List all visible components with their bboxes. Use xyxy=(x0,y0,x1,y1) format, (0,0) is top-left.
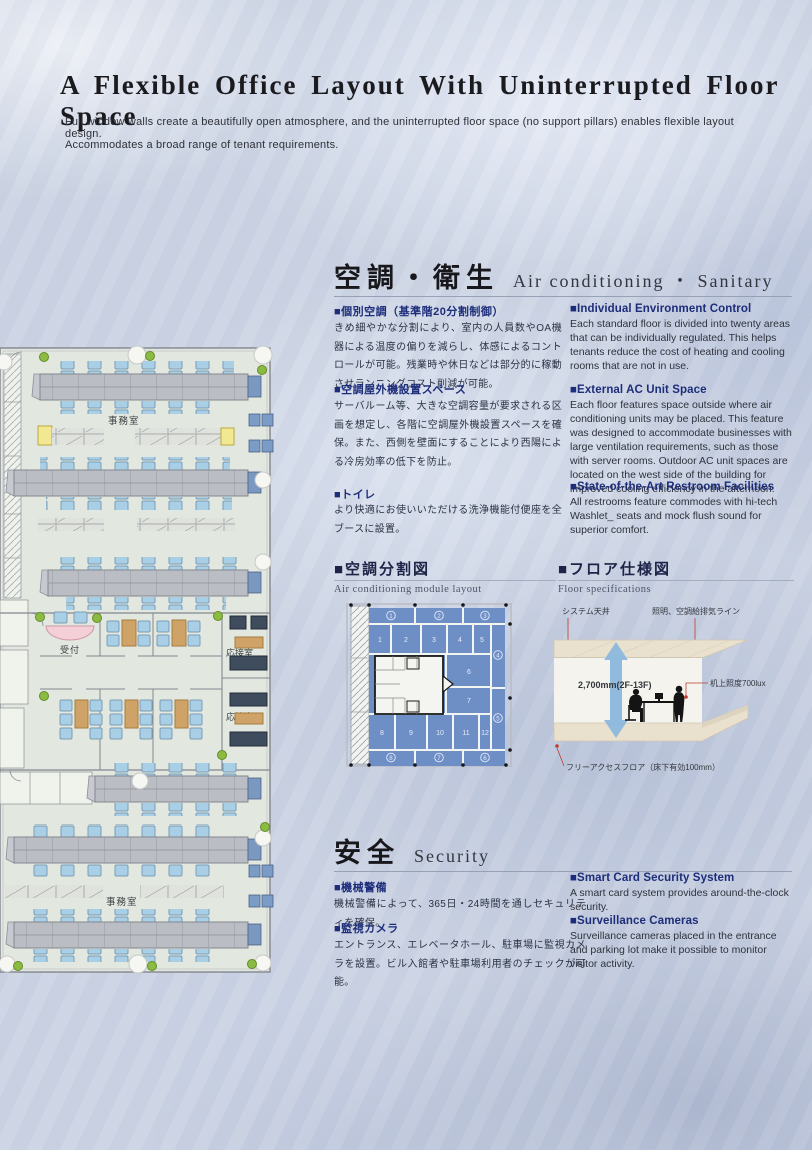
security-jp-heading-1: ■機械警備 xyxy=(334,879,387,895)
aircon-jp-heading-2: ■空調屋外機設置スペース xyxy=(334,381,466,397)
svg-text:11: 11 xyxy=(462,730,469,737)
brochure-page: A Flexible Office Layout With Uninterrup… xyxy=(0,0,812,1150)
office-floor-plan: 事務室 xyxy=(0,344,280,976)
svg-text:5: 5 xyxy=(480,637,484,644)
height-label: 2,700mm(2F-13F) xyxy=(578,680,652,690)
module-layout-heading-jp: ■空調分割図 xyxy=(334,558,430,579)
aircon-jp-heading-3: ■トイレ xyxy=(334,486,376,502)
aircon-en-heading-1: ■Individual Environment Control xyxy=(570,303,751,315)
aircon-rule xyxy=(334,296,792,297)
aircon-en-body-3: All restrooms feature commodes with hi-t… xyxy=(570,496,796,538)
svg-text:9: 9 xyxy=(409,730,413,737)
floor-spec-heading-jp: ■フロア仕様図 xyxy=(558,558,671,579)
lighting-label: 照明、空調給排気ライン xyxy=(652,606,740,616)
floor-leader xyxy=(556,745,564,766)
building-core xyxy=(375,656,453,714)
security-en-heading-2: ■Surveillance Cameras xyxy=(570,915,699,927)
sofa-set xyxy=(230,693,267,746)
office-upper-label: 事務室 xyxy=(108,415,140,427)
aircon-en-heading-3: ■State-of-the-Art Restroom Facilities xyxy=(570,481,774,493)
aircon-title-en: Air conditioning ・ Sanitary xyxy=(513,267,773,293)
office-lower-label: 事務室 xyxy=(106,896,138,908)
aircon-jp-body-2: サーバルーム等、大きな空調容量が要求される区画を想定し、各階に空調屋外機設置スペ… xyxy=(334,398,562,472)
security-title-jp: 安全 xyxy=(334,831,400,870)
lux-label: 机上照度700lux xyxy=(710,678,766,688)
svg-text:8: 8 xyxy=(389,755,393,762)
security-section-header: 安全 Security xyxy=(334,831,490,870)
security-en-heading-1: ■Smart Card Security System xyxy=(570,872,734,884)
svg-text:6: 6 xyxy=(467,669,471,676)
svg-text:6: 6 xyxy=(483,755,487,762)
subtitle-line-2: Accommodates a broad range of tenant req… xyxy=(65,139,765,151)
floor-spec-heading-en: Floor specifications xyxy=(558,584,651,595)
svg-text:5: 5 xyxy=(496,716,500,723)
aircon-en-body-1: Each standard floor is divided into twen… xyxy=(570,318,796,374)
floor-spec-diagram: システム天井 照明、空調給排気ライン 2,700mm(2F-13F) xyxy=(552,598,802,783)
aircon-title-jp: 空調・衛生 xyxy=(334,256,499,295)
ac-module-diagram: 1 2 3 4 5 6 7 8 9 10 11 12 1 2 3 4 5 8 7… xyxy=(345,600,515,772)
free-access-floor-label: フリーアクセスフロア（床下有効100mm） xyxy=(566,762,720,772)
svg-text:1: 1 xyxy=(389,613,393,620)
svg-text:8: 8 xyxy=(380,730,384,737)
svg-text:7: 7 xyxy=(467,698,471,705)
module-layout-rule xyxy=(334,580,556,581)
ceiling-label: システム天井 xyxy=(562,606,610,616)
floor-spec-rule xyxy=(558,580,794,581)
svg-text:3: 3 xyxy=(432,637,436,644)
security-en-body-1: A smart card system provides around-the-… xyxy=(570,887,796,915)
svg-text:2: 2 xyxy=(437,613,441,620)
svg-text:12: 12 xyxy=(481,730,489,737)
svg-text:4: 4 xyxy=(496,653,500,660)
security-jp-body-2: エントランス、エレベータホール、駐車場に監視カメラを設置。ビル入館者や駐車場利用… xyxy=(334,937,586,993)
reception-label: 受付 xyxy=(60,644,80,655)
svg-text:2: 2 xyxy=(404,637,408,644)
svg-text:4: 4 xyxy=(458,637,462,644)
module-layout-heading-en: Air conditioning module layout xyxy=(334,584,482,595)
aircon-jp-heading-1: ■個別空調（基準階20分割制御） xyxy=(334,303,504,319)
aircon-section-header: 空調・衛生 Air conditioning ・ Sanitary xyxy=(334,256,773,295)
security-title-en: Security xyxy=(414,846,490,867)
aircon-en-heading-2: ■External AC Unit Space xyxy=(570,384,707,396)
svg-text:7: 7 xyxy=(437,755,441,762)
ceiling-slab xyxy=(554,640,748,658)
cabinet-row xyxy=(38,426,234,445)
security-en-body-2: Surveillance cameras placed in the entra… xyxy=(570,930,796,972)
svg-text:10: 10 xyxy=(436,730,444,737)
security-jp-heading-2: ■監視カメラ xyxy=(334,920,399,936)
desk-row xyxy=(87,763,261,816)
svg-text:3: 3 xyxy=(483,613,487,620)
subtitle-line-1: Full window walls create a beautifully o… xyxy=(65,116,765,140)
aircon-jp-body-3: より快適にお使いいただける洗浄機能付便座を全ブースに設置。 xyxy=(334,502,562,539)
west-hatch-strip xyxy=(351,606,369,764)
svg-text:1: 1 xyxy=(378,637,382,644)
